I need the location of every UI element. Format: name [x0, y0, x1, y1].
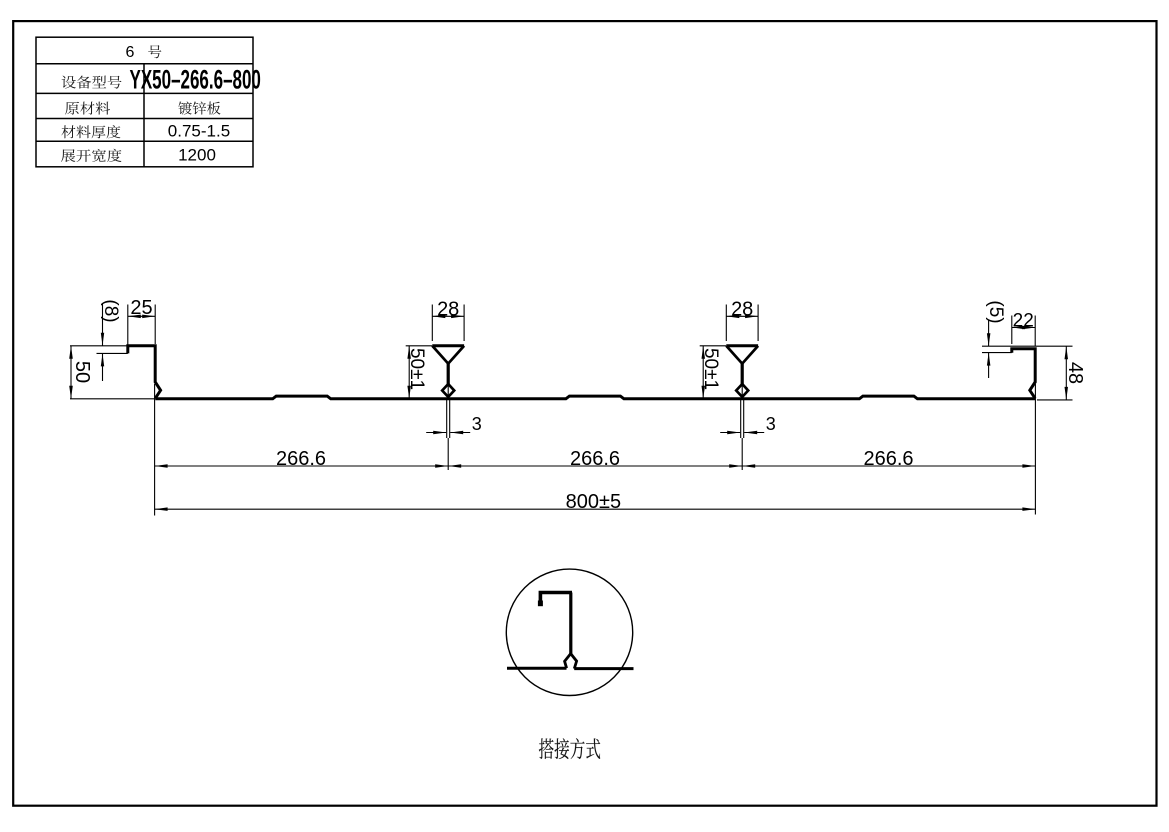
svg-text:50±1: 50±1: [406, 348, 427, 390]
svg-text:48: 48: [1064, 362, 1086, 384]
svg-text:266.6: 266.6: [570, 448, 620, 470]
svg-text:(5): (5): [985, 300, 1006, 323]
svg-text:800±5: 800±5: [566, 491, 621, 513]
svg-text:28: 28: [437, 298, 459, 320]
svg-text:266.6: 266.6: [276, 448, 326, 470]
svg-text:50: 50: [71, 361, 93, 383]
svg-text:YX50–266.6–800: YX50–266.6–800: [130, 64, 261, 94]
svg-text:1200: 1200: [178, 145, 216, 164]
svg-text:25: 25: [130, 297, 152, 319]
svg-text:266.6: 266.6: [863, 448, 913, 470]
svg-text:3: 3: [766, 414, 776, 434]
svg-text:0.75-1.5: 0.75-1.5: [168, 121, 230, 140]
svg-text:(8): (8): [100, 299, 121, 322]
svg-text:50±1: 50±1: [700, 348, 721, 390]
svg-text:6: 6: [126, 44, 135, 61]
svg-text:28: 28: [731, 298, 753, 320]
svg-text:22: 22: [1013, 310, 1034, 331]
svg-text:3: 3: [472, 414, 482, 434]
